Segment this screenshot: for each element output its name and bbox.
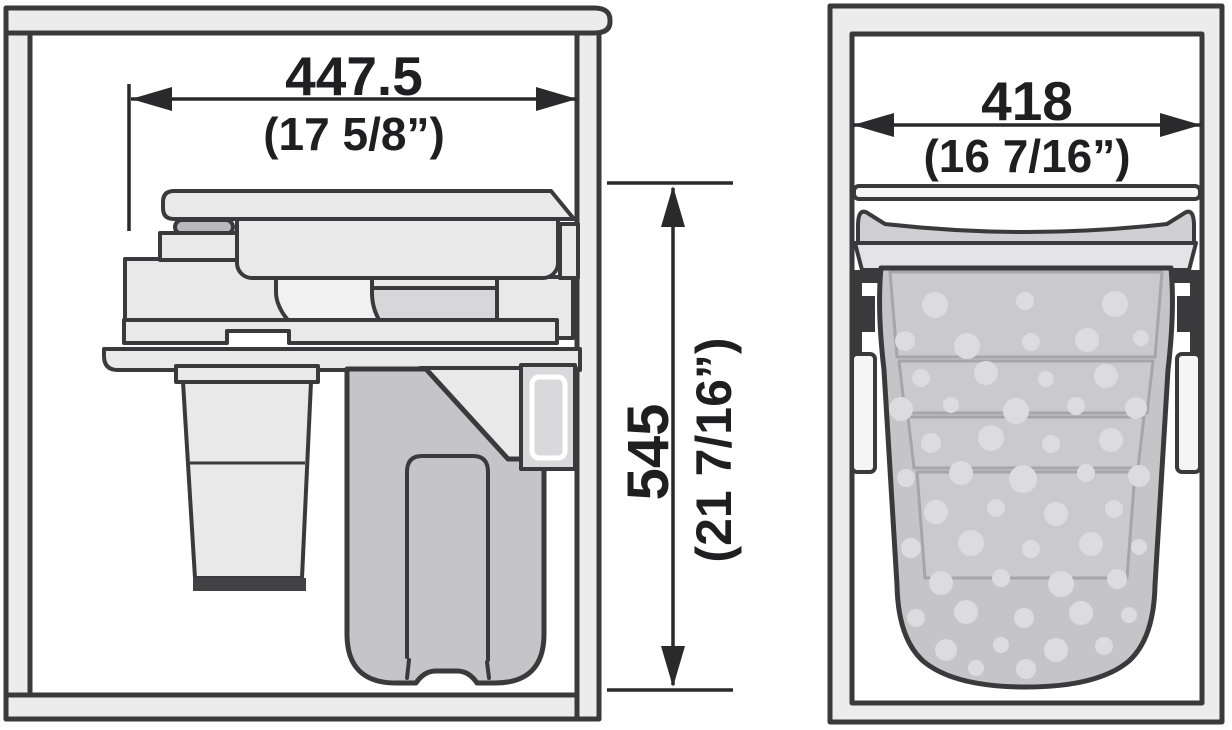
container-body <box>183 382 311 578</box>
side-bottom-panel <box>6 695 599 719</box>
arrowhead-right-icon <box>536 87 577 111</box>
front-view-figure: 418 (16 7/16”) <box>830 6 1222 722</box>
mech-left-block <box>160 233 237 260</box>
arrowhead-down-icon <box>661 646 685 687</box>
side-height-inch-label: (21 7/16”) <box>686 337 742 562</box>
side-view-figure: 447.5 (17 5/8”) 545 (21 7/16”) <box>6 8 742 719</box>
mech-lower-bar <box>124 320 557 343</box>
mech-top-rail-side <box>163 191 574 219</box>
mech-post-connector <box>560 224 578 278</box>
bag-inner-frame-steps <box>890 272 1162 578</box>
side-height-mm-label: 545 <box>616 404 681 501</box>
container-rim <box>176 366 318 382</box>
side-left-wall <box>6 33 30 719</box>
side-width-inch-label: (17 5/8”) <box>263 108 445 160</box>
container-base <box>193 578 306 591</box>
side-height-dimension: 545 (21 7/16”) <box>607 183 742 690</box>
right-runner-slot <box>1177 354 1200 472</box>
left-runner-slot <box>852 354 875 472</box>
arrowhead-up-icon <box>661 186 685 227</box>
side-top-panel <box>6 8 610 33</box>
side-width-mm-label: 447.5 <box>285 45 423 107</box>
technical-drawing-page: 447.5 (17 5/8”) 545 (21 7/16”) <box>0 0 1232 730</box>
side-container <box>176 366 318 591</box>
mounting-plate <box>521 365 575 469</box>
pull-out-mechanism <box>104 191 580 370</box>
side-front-post <box>577 30 599 719</box>
front-top-rail <box>854 186 1200 199</box>
laundry-pullout-dimension-diagram: 447.5 (17 5/8”) 545 (21 7/16”) <box>0 0 1232 730</box>
arrowhead-left-icon <box>131 87 172 111</box>
front-laundry-bag <box>880 268 1173 687</box>
front-width-inch-label: (16 7/16”) <box>923 130 1130 182</box>
front-width-mm-label: 418 <box>981 70 1073 132</box>
